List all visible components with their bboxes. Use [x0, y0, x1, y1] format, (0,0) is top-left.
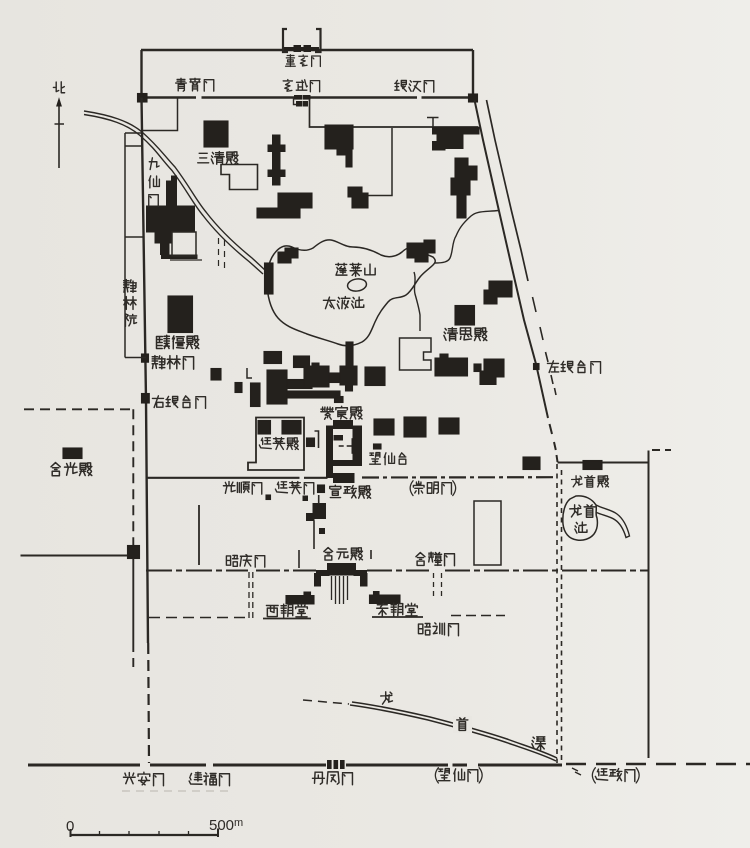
svg-text:m: m	[234, 817, 243, 829]
svg-text:0: 0	[66, 818, 74, 835]
svg-text:500: 500	[209, 817, 234, 834]
